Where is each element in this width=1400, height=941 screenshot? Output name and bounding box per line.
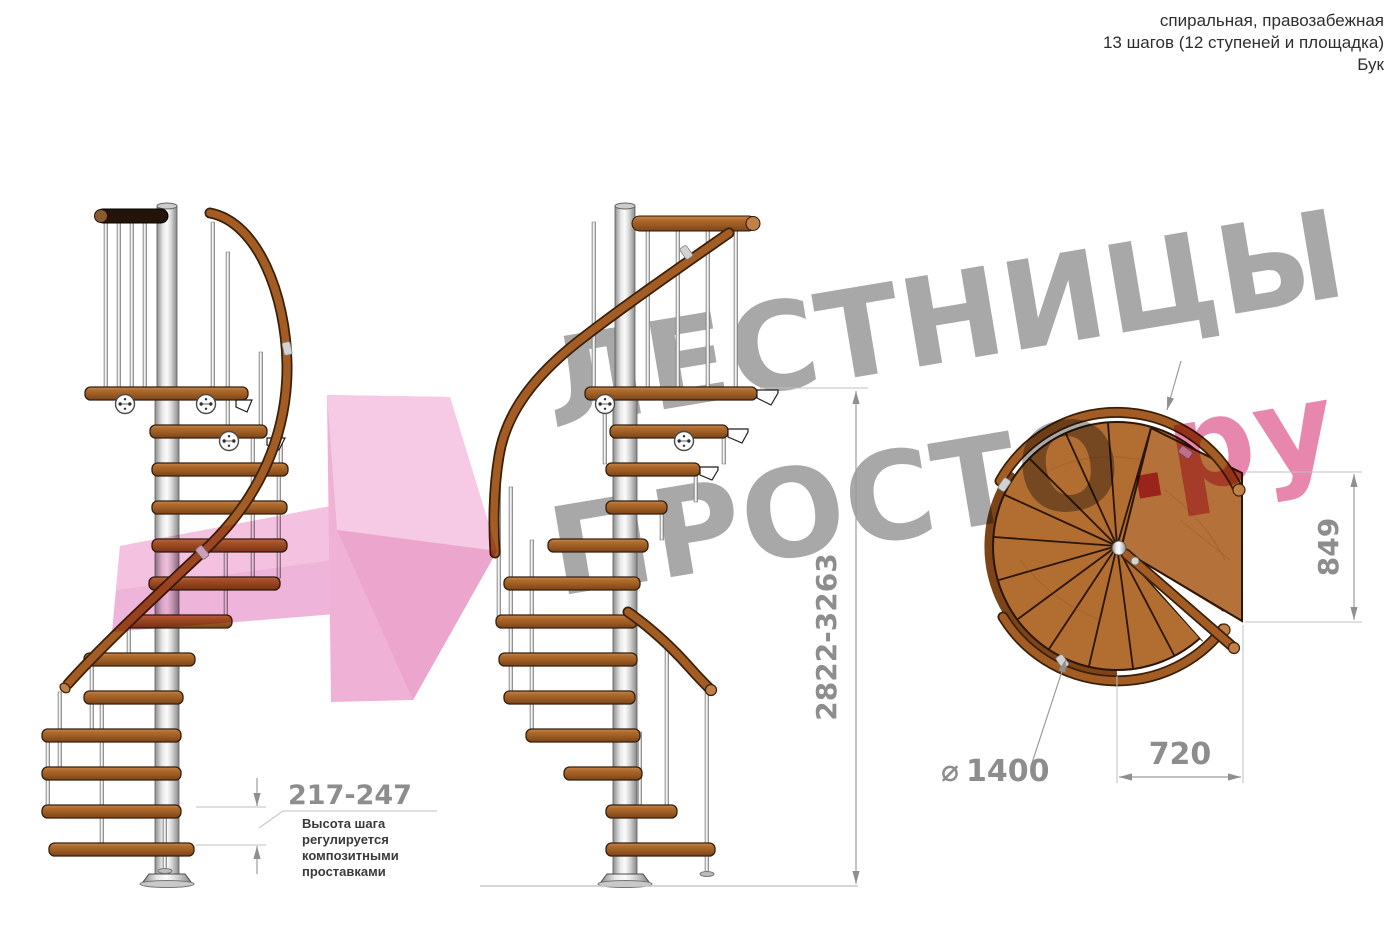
pole-cap — [157, 203, 177, 209]
tread — [526, 729, 640, 742]
tread — [504, 577, 640, 590]
pole-base-plate — [140, 881, 194, 888]
tread — [548, 539, 648, 552]
step-height-value: 217-247 — [288, 780, 412, 811]
tread — [606, 463, 700, 476]
rail-joint — [1131, 557, 1139, 565]
support-bracket — [236, 400, 252, 412]
diameter-sign: ⌀ — [941, 754, 959, 789]
dimension-exit-width: 720 — [1119, 737, 1241, 777]
baluster-foot — [700, 872, 714, 877]
annotation-line3: композитными — [302, 848, 399, 863]
tread — [84, 691, 183, 704]
center-pole-top — [1112, 541, 1126, 555]
pole-clamp-disc — [220, 432, 239, 451]
rail-end-cap — [746, 217, 760, 231]
pole-cap — [615, 203, 635, 209]
tread — [606, 805, 677, 818]
tread — [42, 805, 181, 818]
handrail-end-cap — [1229, 643, 1240, 654]
support-bracket — [728, 429, 748, 443]
drawing-sheet: спиральная, правозабежная 13 шагов (12 с… — [0, 0, 1400, 941]
exit-width-value: 720 — [1149, 737, 1212, 772]
tread — [152, 501, 287, 514]
tread — [42, 767, 181, 780]
tread — [606, 501, 667, 514]
tread — [42, 729, 181, 742]
pole-clamp-disc — [116, 395, 135, 414]
platform-rail — [632, 216, 756, 231]
pole-clamp-disc — [197, 395, 216, 414]
tread — [49, 843, 194, 856]
tread — [496, 615, 637, 628]
diameter-value: 1400 — [966, 754, 1050, 789]
tread — [564, 767, 642, 780]
pole-clamp-disc — [596, 395, 615, 414]
dimension-step-height: 217-247 Высота шага регулируется компози… — [196, 778, 437, 879]
center-pole — [613, 388, 637, 874]
handrail-end-cap — [706, 685, 717, 696]
annotation-line2: регулируется — [302, 832, 389, 847]
center-pole-upper — [157, 206, 177, 390]
watermark-suffix: ру — [1156, 354, 1346, 522]
total-height-value: 2822-3263 — [810, 553, 843, 720]
annotation-line4: проставками — [302, 864, 386, 879]
pole-clamp-disc — [675, 432, 694, 451]
center-pole — [155, 388, 179, 874]
tread — [150, 425, 267, 438]
tread — [499, 653, 637, 666]
tread — [504, 691, 635, 704]
baluster-foot — [158, 869, 172, 874]
annotation-line1: Высота шага — [302, 816, 386, 831]
rail-end-cap — [95, 210, 108, 223]
tread — [610, 425, 728, 438]
drawing-svg: ЛЕСТНИЦЫ ПРОСТО.ру — [0, 0, 1400, 941]
tread — [606, 843, 715, 856]
platform-side-value: 849 — [1312, 518, 1345, 576]
platform-board — [85, 387, 248, 400]
dimension-diameter: ⌀ 1400 — [941, 659, 1066, 789]
